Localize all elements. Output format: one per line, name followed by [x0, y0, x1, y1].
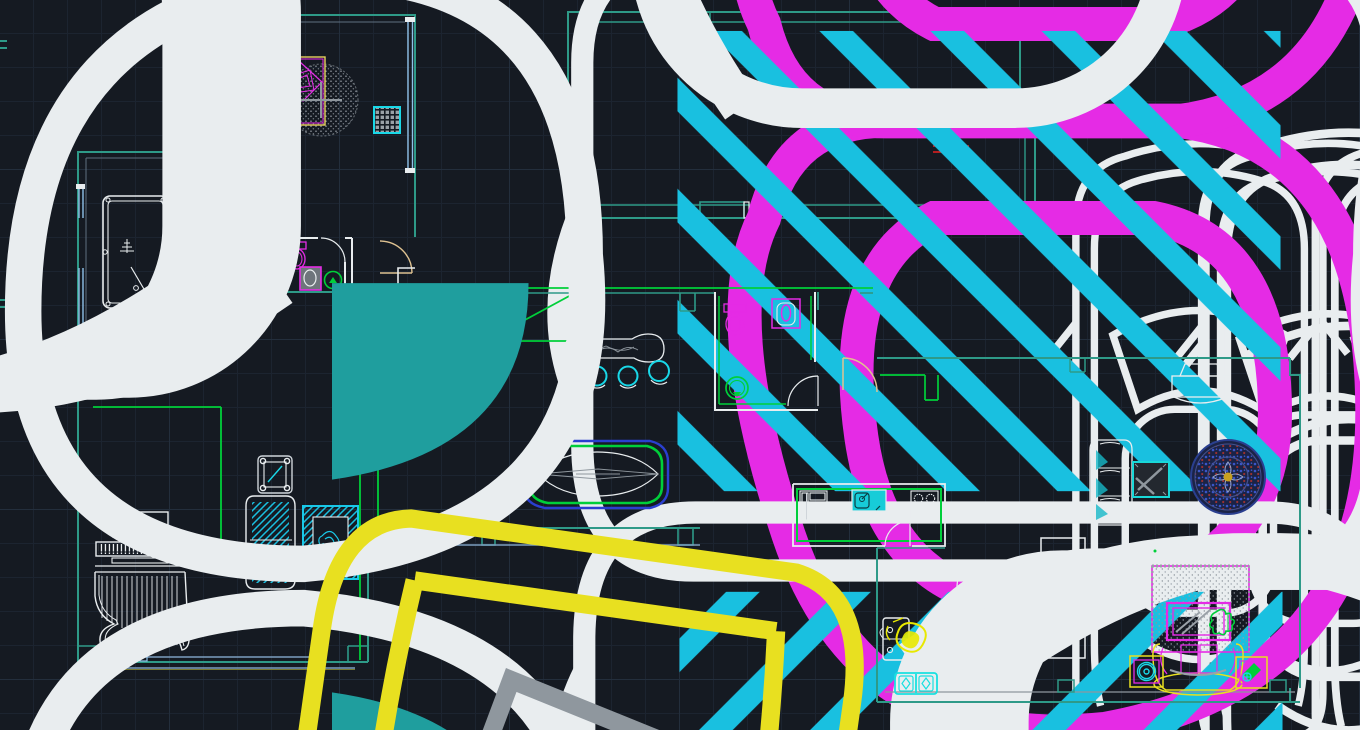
cad-viewport[interactable]: UP [0, 0, 1360, 730]
double-burner[interactable] [895, 673, 937, 694]
drawing-canvas[interactable]: UP [0, 0, 1360, 730]
bedroom-side-table[interactable] [374, 107, 400, 133]
kitchen-sink [852, 490, 886, 511]
glass-coffee-table [1133, 462, 1169, 497]
ornate-round-rug[interactable] [1191, 440, 1265, 514]
shower-tray [300, 267, 321, 290]
